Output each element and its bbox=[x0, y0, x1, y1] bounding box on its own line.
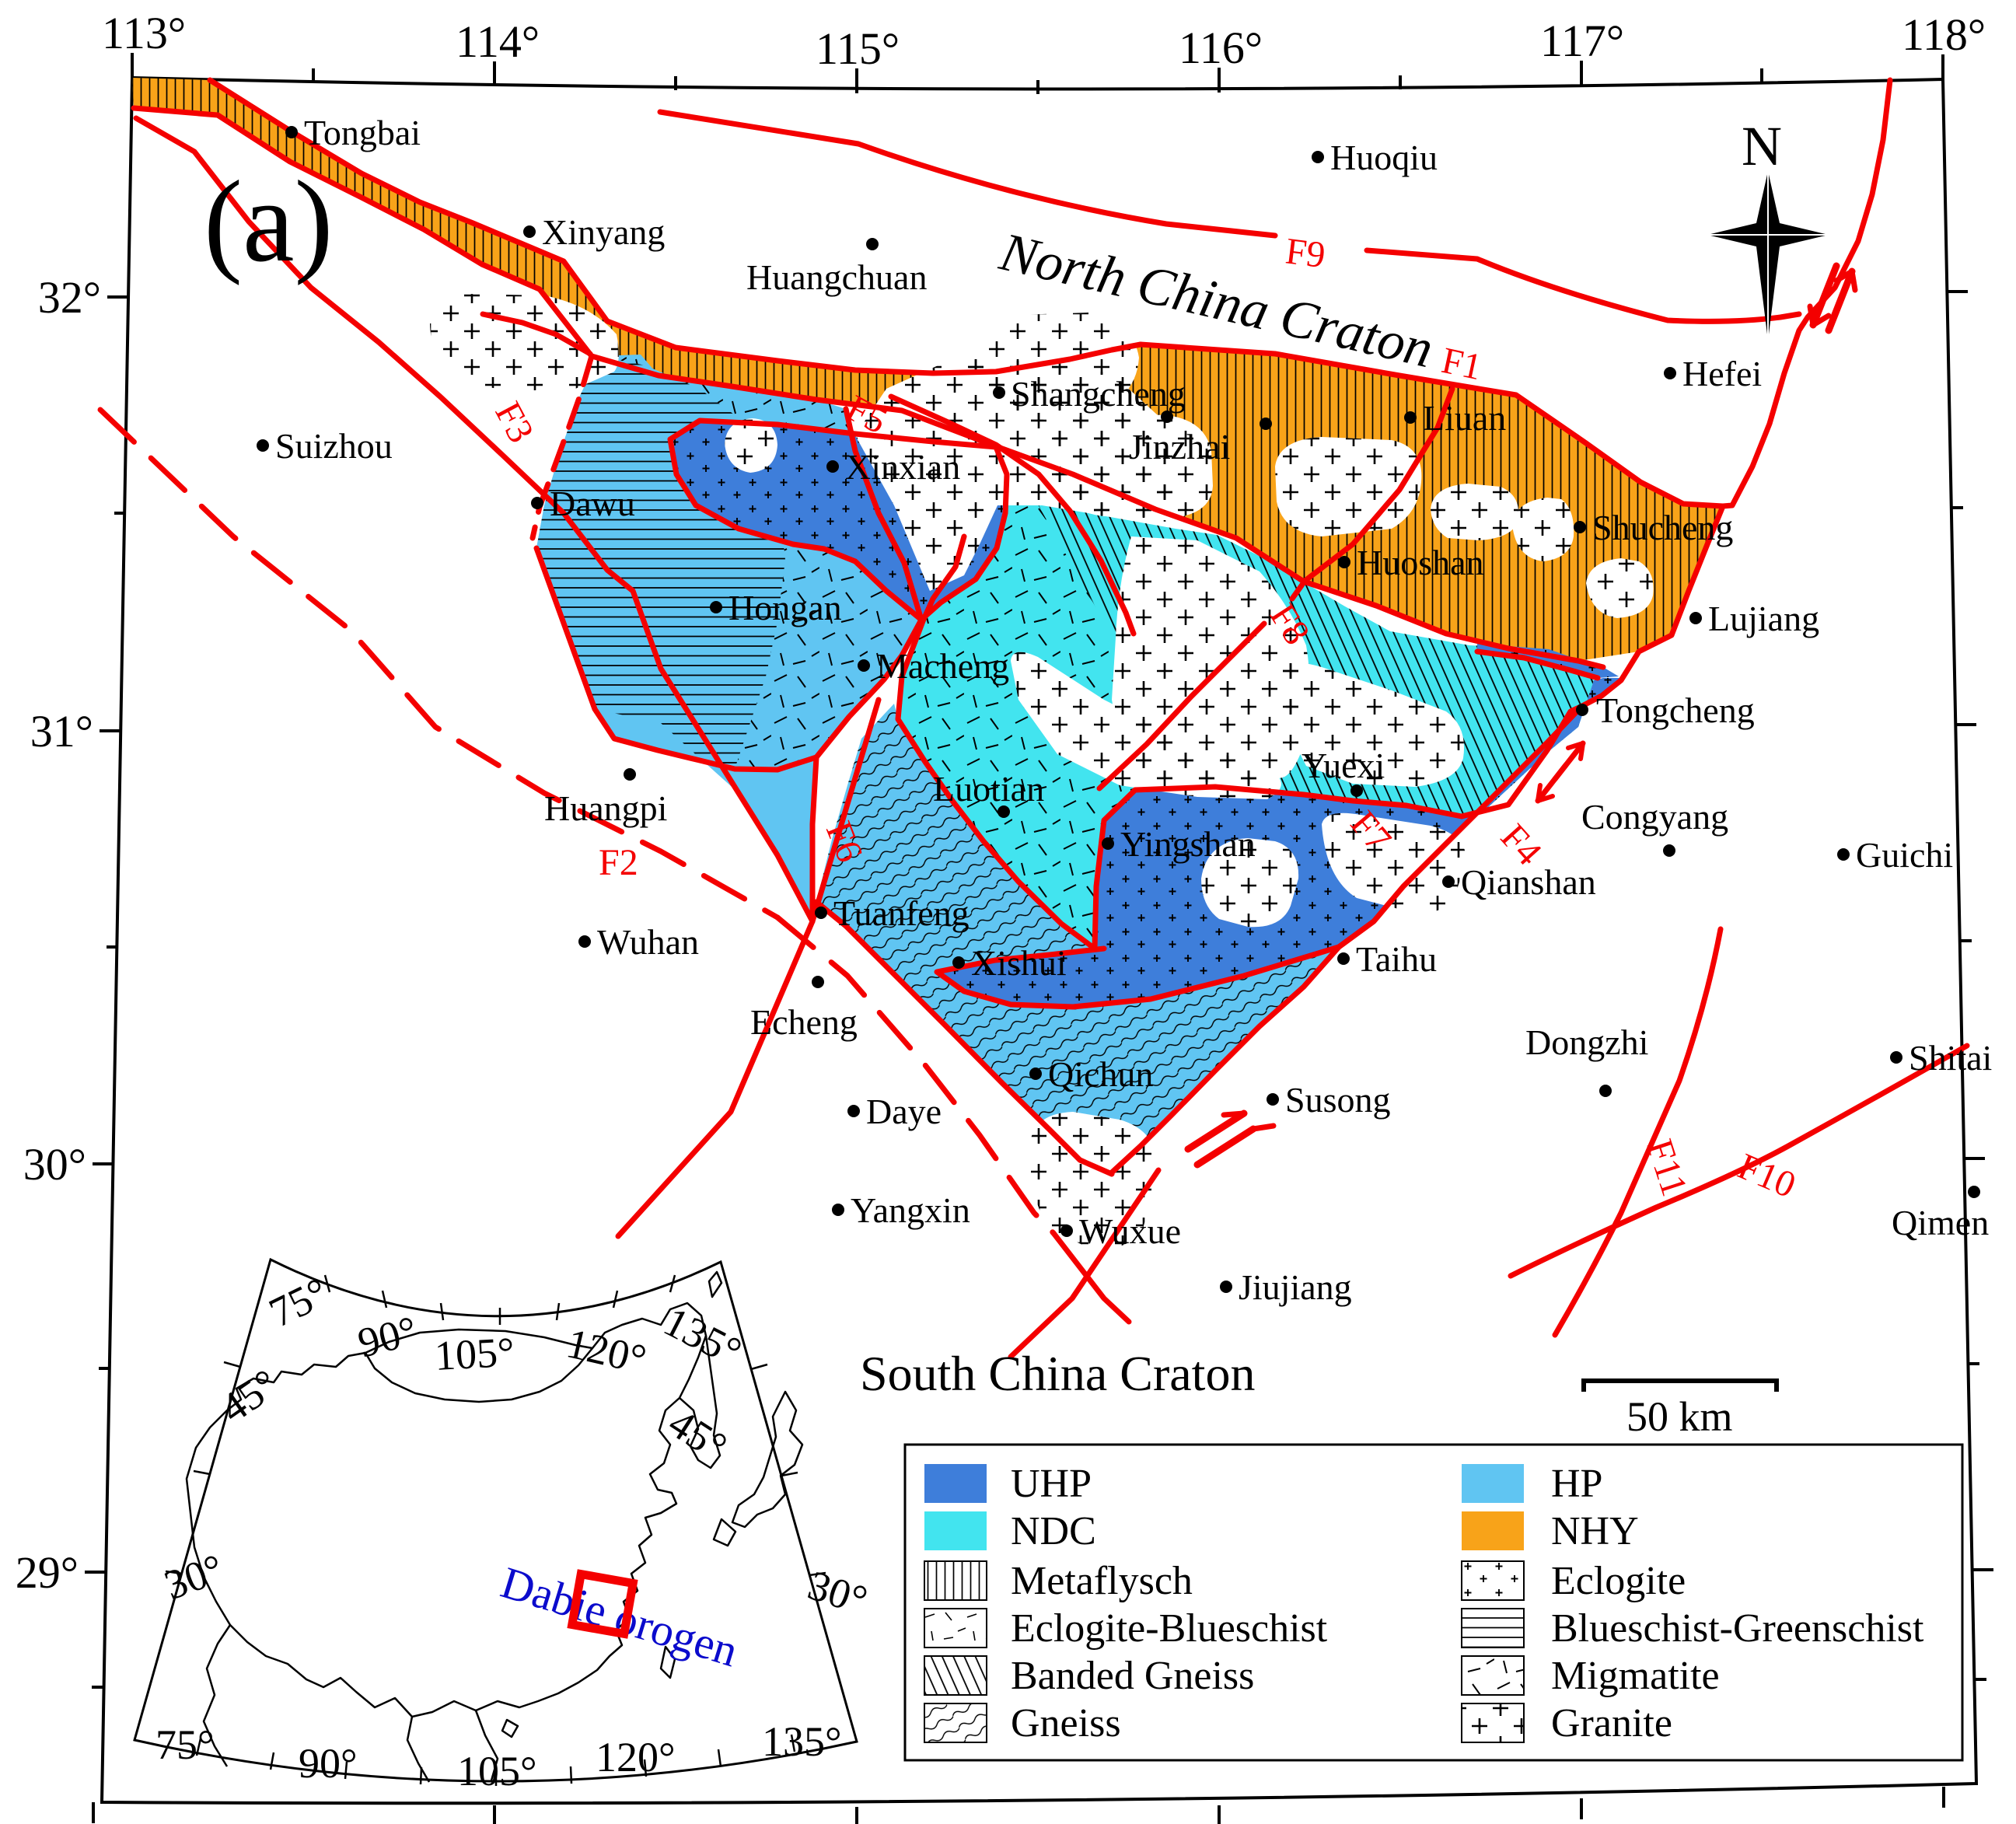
svg-text:Luotian: Luotian bbox=[933, 769, 1044, 809]
svg-text:Xinxian: Xinxian bbox=[845, 447, 960, 487]
svg-text:29°: 29° bbox=[16, 1547, 79, 1598]
svg-text:Blueschist-Greenschist: Blueschist-Greenschist bbox=[1551, 1606, 1924, 1651]
svg-text:HP: HP bbox=[1551, 1462, 1602, 1506]
svg-text:Wuhan: Wuhan bbox=[597, 922, 699, 962]
svg-text:Metaflysch: Metaflysch bbox=[1011, 1559, 1193, 1603]
svg-text:Eclogite-Blueschist: Eclogite-Blueschist bbox=[1011, 1606, 1328, 1651]
svg-text:116°: 116° bbox=[1179, 23, 1263, 73]
svg-text:Tongbai: Tongbai bbox=[304, 113, 421, 152]
svg-text:Shangcheng: Shangcheng bbox=[1011, 374, 1186, 414]
svg-text:Jinzhai: Jinzhai bbox=[1129, 427, 1230, 466]
svg-text:Xishui: Xishui bbox=[971, 943, 1067, 983]
svg-text:Banded Gneiss: Banded Gneiss bbox=[1011, 1654, 1254, 1698]
svg-text:114°: 114° bbox=[456, 16, 540, 67]
svg-text:Dawu: Dawu bbox=[550, 484, 635, 523]
svg-text:115°: 115° bbox=[816, 23, 900, 74]
svg-text:Tuanfeng: Tuanfeng bbox=[833, 893, 970, 933]
svg-text:75°: 75° bbox=[155, 1721, 215, 1768]
svg-text:113°: 113° bbox=[102, 8, 186, 58]
svg-text:135°: 135° bbox=[762, 1718, 842, 1765]
svg-text:Granite: Granite bbox=[1551, 1701, 1672, 1745]
svg-text:Yingshan: Yingshan bbox=[1120, 824, 1256, 864]
svg-text:Daye: Daye bbox=[866, 1092, 942, 1131]
svg-text:Xinyang: Xinyang bbox=[542, 212, 665, 252]
svg-text:Taihu: Taihu bbox=[1356, 939, 1437, 979]
svg-text:Shitai: Shitai bbox=[1909, 1038, 1992, 1078]
svg-text:NDC: NDC bbox=[1011, 1509, 1096, 1553]
svg-text:Migmatite: Migmatite bbox=[1551, 1654, 1720, 1698]
svg-text:UHP: UHP bbox=[1011, 1462, 1092, 1506]
svg-text:South China Craton: South China Craton bbox=[860, 1346, 1255, 1401]
svg-text:30°: 30° bbox=[23, 1139, 86, 1190]
svg-text:Wuxue: Wuxue bbox=[1079, 1211, 1181, 1251]
svg-text:Huoqiu: Huoqiu bbox=[1330, 138, 1438, 177]
svg-text:105°: 105° bbox=[433, 1329, 515, 1379]
svg-text:Macheng: Macheng bbox=[876, 646, 1009, 686]
svg-text:Congyang: Congyang bbox=[1581, 797, 1728, 837]
svg-text:Hongan: Hongan bbox=[728, 588, 842, 627]
svg-text:F1: F1 bbox=[1438, 340, 1486, 388]
svg-text:50 km: 50 km bbox=[1626, 1393, 1733, 1440]
svg-text:Qimen: Qimen bbox=[1892, 1203, 1989, 1242]
svg-text:Shucheng: Shucheng bbox=[1592, 508, 1733, 547]
svg-text:(a): (a) bbox=[204, 157, 333, 286]
svg-text:Huoshan: Huoshan bbox=[1357, 543, 1484, 582]
svg-text:Huangchuan: Huangchuan bbox=[746, 257, 927, 297]
svg-text:Jiujiang: Jiujiang bbox=[1239, 1267, 1352, 1307]
svg-text:Huangpi: Huangpi bbox=[544, 788, 667, 828]
svg-text:Eclogite: Eclogite bbox=[1551, 1559, 1686, 1603]
svg-text:Qichun: Qichun bbox=[1048, 1054, 1153, 1094]
svg-text:F9: F9 bbox=[1284, 230, 1328, 276]
svg-text:118°: 118° bbox=[1902, 9, 1986, 60]
svg-text:Qianshan: Qianshan bbox=[1461, 862, 1596, 902]
svg-text:Guichi: Guichi bbox=[1856, 835, 1953, 875]
svg-text:Hefei: Hefei bbox=[1682, 354, 1762, 393]
svg-text:Susong: Susong bbox=[1285, 1080, 1390, 1120]
svg-text:117°: 117° bbox=[1540, 16, 1624, 66]
svg-text:105°: 105° bbox=[457, 1748, 537, 1794]
svg-text:32°: 32° bbox=[38, 272, 101, 323]
svg-text:120°: 120° bbox=[596, 1734, 676, 1780]
svg-text:31°: 31° bbox=[30, 706, 93, 757]
svg-text:Suizhou: Suizhou bbox=[275, 426, 393, 466]
svg-text:F2: F2 bbox=[599, 842, 638, 883]
svg-text:Tongcheng: Tongcheng bbox=[1596, 690, 1755, 730]
svg-text:90°: 90° bbox=[299, 1740, 358, 1787]
svg-text:Liuan: Liuan bbox=[1423, 398, 1506, 438]
svg-text:Echeng: Echeng bbox=[750, 1002, 858, 1042]
svg-text:NHY: NHY bbox=[1551, 1509, 1639, 1553]
svg-text:N: N bbox=[1742, 115, 1782, 177]
svg-text:Yangxin: Yangxin bbox=[851, 1190, 970, 1230]
svg-text:Yuexi: Yuexi bbox=[1301, 746, 1385, 785]
svg-text:Lujiang: Lujiang bbox=[1708, 599, 1819, 638]
svg-text:Dongzhi: Dongzhi bbox=[1525, 1022, 1648, 1062]
svg-text:Gneiss: Gneiss bbox=[1011, 1701, 1121, 1745]
